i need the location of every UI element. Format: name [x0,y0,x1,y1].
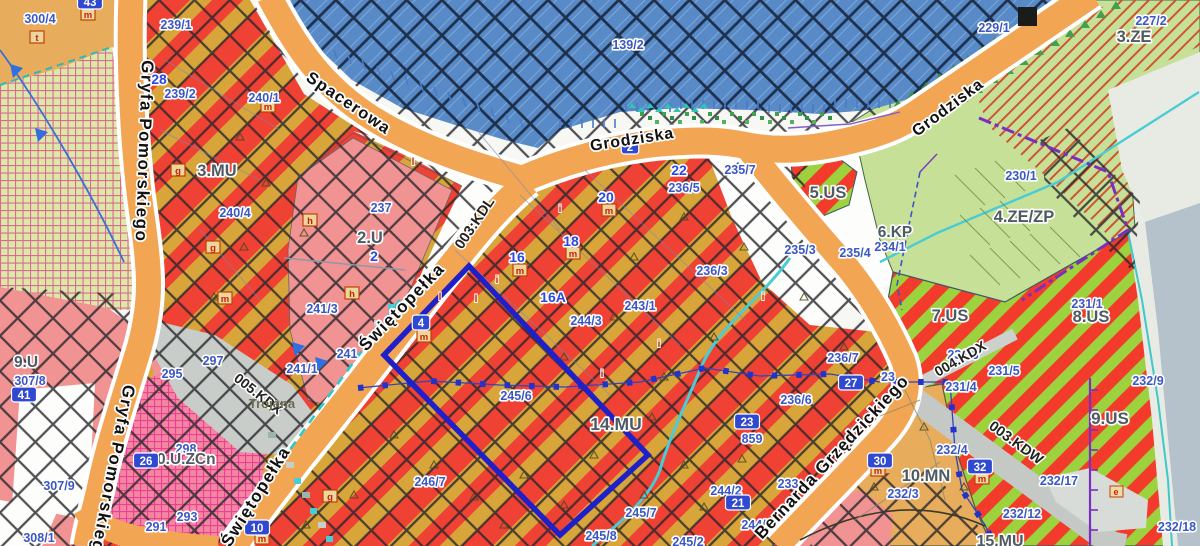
svg-text:30: 30 [874,456,887,468]
svg-text:240/1: 240/1 [248,91,279,105]
svg-text:i: i [559,204,562,215]
svg-text:232/17: 232/17 [1040,474,1078,488]
svg-text:7.US: 7.US [932,307,969,325]
svg-text:245/8: 245/8 [585,529,616,543]
svg-text:232/4: 232/4 [936,443,967,457]
svg-text:27: 27 [845,378,858,390]
svg-text:236/5: 236/5 [668,181,699,195]
svg-text:295: 295 [162,367,183,381]
svg-text:245/2: 245/2 [672,535,703,546]
svg-text:3.ZE: 3.ZE [1117,28,1152,46]
svg-text:m: m [978,474,986,485]
svg-text:41: 41 [18,390,31,402]
svg-text:234/1: 234/1 [874,240,905,254]
svg-text:235/4: 235/4 [839,246,870,260]
svg-text:26: 26 [140,456,153,468]
svg-text:235/3: 235/3 [784,243,815,257]
svg-text:4.ZE/ZP: 4.ZE/ZP [994,208,1055,226]
svg-text:m: m [420,332,428,343]
svg-text:232/12: 232/12 [1003,507,1041,521]
svg-text:m: m [221,294,229,305]
svg-text:239/1: 239/1 [160,18,191,32]
svg-text:307/9: 307/9 [43,479,74,493]
svg-text:e: e [1113,487,1118,497]
svg-text:232/9: 232/9 [1132,374,1163,388]
svg-text:m: m [569,249,577,260]
svg-text:g: g [327,492,333,503]
svg-text:5.US: 5.US [810,184,847,202]
svg-text:239/2: 239/2 [164,87,195,101]
svg-text:237: 237 [371,201,392,215]
svg-text:14.MU: 14.MU [590,414,642,434]
svg-text:16: 16 [509,249,525,265]
svg-text:i: i [658,339,661,350]
svg-text:243/1: 243/1 [624,299,655,313]
svg-text:227/2: 227/2 [1135,14,1166,28]
svg-text:139/2: 139/2 [612,38,643,52]
svg-text:236/6: 236/6 [780,393,811,407]
svg-text:8.US: 8.US [1073,308,1110,326]
svg-text:20: 20 [598,189,614,205]
svg-text:m: m [516,266,524,277]
svg-text:6.KP: 6.KP [878,224,912,241]
svg-text:232/3: 232/3 [887,487,918,501]
svg-text:16A: 16A [540,289,566,305]
svg-text:4: 4 [418,318,425,330]
svg-text:291: 291 [146,520,167,534]
svg-text:10: 10 [251,523,264,535]
svg-text:23: 23 [741,417,754,429]
svg-text:10.MN: 10.MN [902,467,951,485]
svg-text:43: 43 [84,0,97,9]
svg-text:15.MU: 15.MU [976,533,1023,546]
svg-text:i: i [601,369,604,380]
svg-text:297: 297 [203,354,224,368]
svg-text:18: 18 [563,233,579,249]
svg-text:236/3: 236/3 [696,264,727,278]
svg-text:m: m [84,10,92,21]
svg-text:235/7: 235/7 [724,163,755,177]
svg-text:9.U: 9.U [14,354,38,371]
svg-text:859: 859 [742,432,763,446]
svg-text:300/4: 300/4 [24,12,55,26]
svg-text:231/4: 231/4 [945,380,976,394]
svg-text:230/1: 230/1 [1005,169,1036,183]
svg-text:l: l [475,294,478,305]
svg-text:3.MU: 3.MU [197,162,236,180]
svg-text:241: 241 [337,347,358,361]
svg-text:240/4: 240/4 [219,206,250,220]
svg-text:m: m [258,534,266,545]
svg-text:232/18: 232/18 [1158,520,1196,534]
svg-text:i: i [762,292,765,303]
svg-text:g: g [210,243,216,254]
svg-text:2.U: 2.U [357,229,383,247]
svg-text:g: g [175,166,181,177]
svg-text:229/1: 229/1 [978,21,1009,35]
svg-text:2: 2 [370,248,378,264]
svg-text:307/8: 307/8 [14,374,45,388]
svg-text:i: i [496,275,499,286]
svg-text:h: h [349,289,355,300]
svg-text:241/3: 241/3 [306,302,337,316]
svg-text:Trojana: Trojana [249,396,296,411]
svg-text:9.US: 9.US [1091,409,1129,428]
svg-text:244/3: 244/3 [570,314,601,328]
svg-text:231/5: 231/5 [988,364,1019,378]
svg-text:h: h [307,216,313,227]
svg-text:246/7: 246/7 [414,475,445,489]
svg-text:l: l [412,157,415,168]
svg-text:245/6: 245/6 [500,389,531,403]
svg-text:241/1: 241/1 [286,362,317,376]
svg-text:32: 32 [974,462,987,474]
svg-text:22: 22 [671,162,687,178]
svg-text:21: 21 [732,498,745,510]
svg-text:m: m [605,206,613,217]
svg-text:245/7: 245/7 [625,506,656,520]
svg-text:308/1: 308/1 [23,531,54,545]
svg-text:236/7: 236/7 [827,351,858,365]
svg-text:293: 293 [177,510,198,524]
svg-text:l: l [439,292,442,303]
